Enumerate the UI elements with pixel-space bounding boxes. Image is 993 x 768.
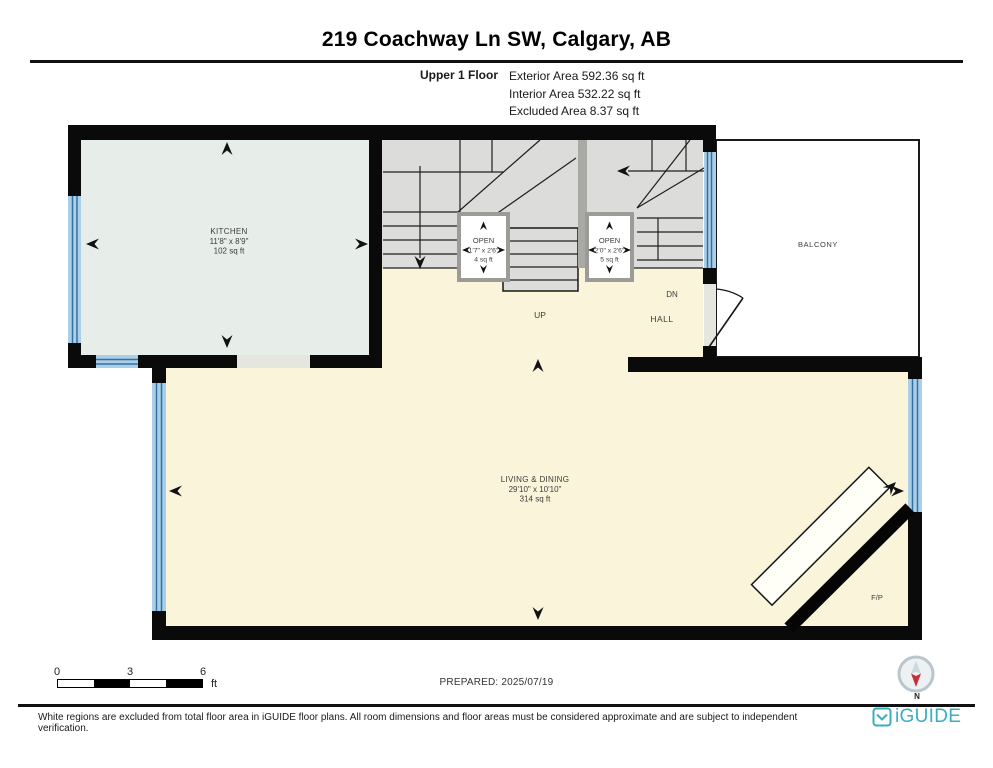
living-dims: 29'10" x 10'10" [509, 485, 562, 494]
fireplace-label: F/P [871, 593, 883, 602]
stair-flight-center [503, 228, 578, 291]
living-name: LIVING & DINING [501, 475, 570, 484]
hall-label: HALL [650, 314, 673, 324]
kitchen-label: KITCHEN 11'8" x 8'9" 102 sq ft [210, 227, 249, 256]
open-shaft-left: OPEN 1'7" x 2'6" 4 sq ft [459, 214, 508, 280]
kitchen-doorway-threshold [237, 355, 310, 368]
down-label: DN [666, 290, 678, 299]
living-area: 314 sq ft [520, 495, 551, 504]
prepared-date: PREPARED: 2025/07/19 [0, 677, 993, 688]
kitchen-dims: 11'8" x 8'9" [210, 237, 249, 246]
kitchen-bottom-window [96, 355, 138, 368]
floorplan-page: 219 Coachway Ln SW, Calgary, AB Upper 1 … [0, 0, 993, 768]
footer-divider [18, 704, 975, 707]
floor-plan-canvas: OPEN 1'7" x 2'6" 4 sq ft OPEN 2'0" x 2'6… [0, 0, 993, 768]
balcony-label: BALCONY [798, 240, 838, 249]
open-left-dims: 1'7" x 2'6" [469, 248, 499, 255]
compass-icon [896, 654, 938, 696]
open-right-area: 5 sq ft [600, 257, 619, 264]
open-shaft-right: OPEN 2'0" x 2'6" 5 sq ft [587, 214, 632, 280]
balcony-window [704, 152, 716, 268]
up-label: UP [534, 310, 546, 320]
kitchen-left-window [68, 196, 81, 343]
open-left-area: 4 sq ft [474, 257, 493, 264]
iguide-logo: iGUIDE [872, 706, 961, 728]
living-right-window [908, 379, 922, 512]
kitchen-area: 102 sq ft [214, 247, 245, 256]
open-right-name: OPEN [599, 236, 620, 245]
iguide-logo-text: iGUIDE [895, 706, 961, 728]
living-left-window [152, 383, 166, 611]
open-left-name: OPEN [473, 236, 494, 245]
iguide-logo-icon [872, 707, 892, 727]
compass-north-label: N [896, 692, 938, 701]
open-right-dims: 2'0" x 2'6" [595, 248, 625, 255]
footer-disclaimer: White regions are excluded from total fl… [38, 712, 838, 734]
kitchen-name: KITCHEN [210, 227, 247, 236]
balcony-doorway-threshold [704, 284, 716, 346]
